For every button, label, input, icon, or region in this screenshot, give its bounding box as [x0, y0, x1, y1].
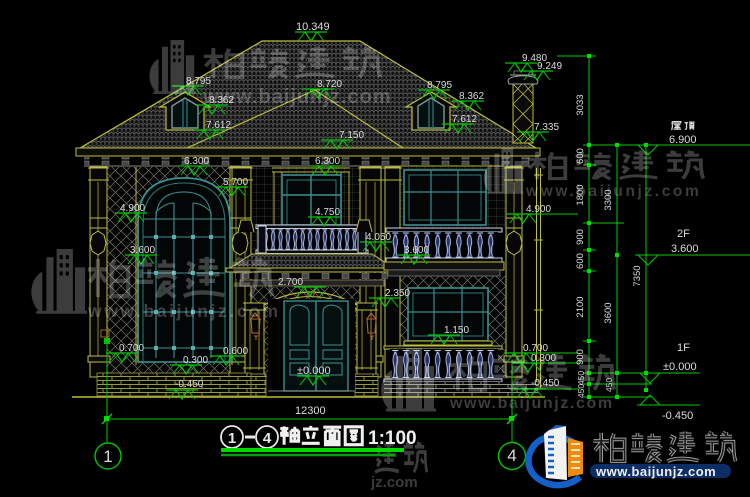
svg-text:±0.000: ±0.000 — [663, 361, 697, 373]
svg-text:4.750: 4.750 — [315, 207, 340, 218]
svg-text:jz.com: jz.com — [370, 474, 418, 491]
svg-text:600: 600 — [575, 253, 586, 269]
svg-text:6.300: 6.300 — [315, 156, 340, 167]
svg-text:7.612: 7.612 — [452, 114, 477, 125]
svg-text:7.335: 7.335 — [534, 122, 559, 133]
svg-text:6.900: 6.900 — [669, 134, 697, 146]
svg-text:www.baijunjz.com: www.baijunjz.com — [525, 183, 701, 200]
svg-text:6.300: 6.300 — [184, 156, 209, 167]
svg-text:3.600: 3.600 — [671, 243, 699, 255]
svg-text:0.700: 0.700 — [119, 343, 144, 354]
svg-text:5.700: 5.700 — [223, 177, 248, 188]
svg-text:3600: 3600 — [603, 302, 614, 323]
svg-text:-0.450: -0.450 — [175, 379, 204, 390]
svg-text:3.600: 3.600 — [404, 245, 429, 256]
svg-text:7.150: 7.150 — [339, 130, 364, 141]
svg-text:900: 900 — [575, 229, 586, 245]
svg-text:4.900: 4.900 — [526, 204, 551, 215]
svg-text:3033: 3033 — [575, 94, 586, 115]
svg-text:1.150: 1.150 — [444, 325, 469, 336]
svg-text:-0.450: -0.450 — [662, 410, 693, 422]
svg-text:4.050: 4.050 — [366, 232, 391, 243]
svg-text:0.300: 0.300 — [183, 355, 208, 366]
svg-text:1: 1 — [103, 447, 112, 466]
svg-text:1: 1 — [228, 430, 236, 447]
svg-text:www.baijunjz.com: www.baijunjz.com — [87, 301, 281, 321]
svg-text:12300: 12300 — [295, 405, 326, 417]
svg-text:8.362: 8.362 — [459, 91, 484, 102]
svg-text:4: 4 — [263, 430, 272, 447]
svg-text:www.baijunjz.com: www.baijunjz.com — [202, 86, 392, 108]
svg-text:2100: 2100 — [575, 296, 586, 317]
svg-text:4: 4 — [507, 446, 516, 465]
svg-text:2F: 2F — [677, 228, 690, 240]
svg-text:4.900: 4.900 — [120, 203, 145, 214]
svg-text:2.700: 2.700 — [278, 277, 303, 288]
svg-text:1F: 1F — [677, 342, 690, 354]
svg-text:1:100: 1:100 — [368, 428, 417, 449]
svg-text:7.612: 7.612 — [206, 120, 231, 131]
svg-text:0.600: 0.600 — [223, 346, 248, 357]
svg-text:3.600: 3.600 — [130, 245, 155, 256]
svg-text:9.249: 9.249 — [537, 61, 562, 72]
svg-text:8.795: 8.795 — [427, 80, 452, 91]
svg-text:10.349: 10.349 — [296, 21, 330, 33]
svg-text:7350: 7350 — [632, 265, 643, 286]
svg-text:www.baijunjz.com: www.baijunjz.com — [595, 464, 716, 479]
svg-text:±0.000: ±0.000 — [297, 365, 331, 377]
svg-text:www.baijunjz.com: www.baijunjz.com — [449, 395, 614, 412]
svg-text:2.350: 2.350 — [385, 288, 410, 299]
